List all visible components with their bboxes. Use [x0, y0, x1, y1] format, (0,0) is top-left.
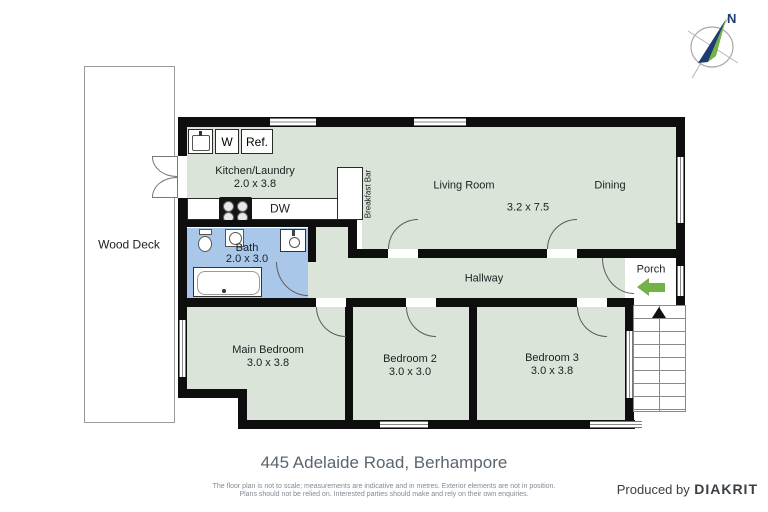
main-bedroom-room-lower — [247, 389, 345, 420]
bedroom2-label: Bedroom 2 3.0 x 3.0 — [383, 353, 437, 379]
window — [590, 421, 642, 428]
kitchen-sink — [188, 129, 213, 154]
compass-icon: N — [686, 6, 750, 82]
wall — [607, 298, 633, 307]
breakfast-bar-counter — [337, 167, 363, 220]
washer-label: W — [221, 135, 232, 149]
entry-arrow-stem-icon — [649, 283, 665, 292]
window — [677, 157, 684, 223]
main-bedroom-dims: 3.0 x 3.8 — [232, 357, 304, 370]
kitchen-dims: 2.0 x 3.8 — [215, 178, 295, 191]
hallway-nook — [316, 227, 348, 258]
porch-label: Porch — [637, 264, 666, 277]
floorplan-page: W Ref. DW — [0, 0, 768, 512]
dining-label: Dining — [594, 180, 625, 193]
bedroom3-dims: 3.0 x 3.8 — [525, 365, 579, 378]
kitchen-label: Kitchen/Laundry 2.0 x 3.8 — [215, 165, 295, 191]
bedroom2-name: Bedroom 2 — [383, 353, 437, 366]
entry-arrow-head-icon — [637, 278, 649, 296]
sink-faucet-icon — [292, 230, 295, 236]
window — [179, 320, 186, 377]
stairs-divider — [659, 305, 660, 412]
stairs-up-arrow-icon — [652, 307, 666, 318]
living-room-label: Living Room — [433, 180, 494, 193]
window — [270, 118, 316, 126]
toilet-tank-icon — [199, 229, 212, 235]
main-bedroom-label: Main Bedroom 3.0 x 3.8 — [232, 344, 304, 370]
credit: Produced by DIAKRIT — [617, 481, 758, 499]
wall — [187, 220, 357, 227]
bath-sink — [280, 229, 306, 252]
kitchen-name: Kitchen/Laundry — [215, 165, 295, 178]
credit-prefix: Produced by — [617, 482, 690, 497]
fridge-label: Ref. — [246, 135, 268, 149]
bath-dims: 2.0 x 3.0 — [226, 254, 268, 265]
compass-north-label: N — [727, 11, 736, 26]
wood-deck-label: Wood Deck — [98, 239, 160, 252]
fridge-box: Ref. — [241, 129, 273, 154]
bedroom3-label: Bedroom 3 3.0 x 3.8 — [525, 352, 579, 378]
sink-faucet-icon — [199, 131, 202, 136]
burner-icon — [237, 201, 248, 212]
wall — [577, 249, 685, 258]
wall — [178, 389, 247, 398]
door-opening — [178, 156, 187, 198]
address-title: 445 Adelaide Road, Berhampore — [0, 453, 768, 473]
wall — [469, 307, 477, 420]
bathtub-icon — [193, 267, 262, 297]
wall — [348, 227, 357, 258]
wall — [346, 298, 406, 307]
breakfast-bar-label: Breakfast Bar — [362, 170, 375, 218]
toilet-icon — [198, 236, 212, 252]
window — [626, 331, 633, 398]
dishwasher-label: DW — [270, 203, 290, 216]
main-bedroom-name: Main Bedroom — [232, 344, 304, 357]
bathtub-inner-icon — [197, 271, 260, 295]
wall — [187, 298, 316, 307]
wall — [238, 420, 635, 429]
wall — [436, 298, 577, 307]
window — [414, 118, 466, 126]
tub-faucet-icon — [222, 289, 226, 293]
credit-brand-logo: DIAKRIT — [694, 481, 758, 497]
window — [677, 266, 684, 296]
sink-basin-icon — [192, 135, 210, 151]
hallway-label: Hallway — [465, 273, 504, 286]
wall — [345, 307, 353, 420]
bedroom3-name: Bedroom 3 — [525, 352, 579, 365]
window — [380, 421, 428, 428]
wall — [418, 249, 547, 258]
washer-box: W — [215, 129, 239, 154]
burner-icon — [223, 201, 234, 212]
bath-label: Bath 2.0 x 3.0 — [226, 243, 268, 265]
living-dims-label: 3.2 x 7.5 — [507, 202, 549, 215]
bedroom2-dims: 3.0 x 3.0 — [383, 366, 437, 379]
wall — [308, 227, 316, 262]
sink-bowl-icon — [289, 237, 300, 248]
